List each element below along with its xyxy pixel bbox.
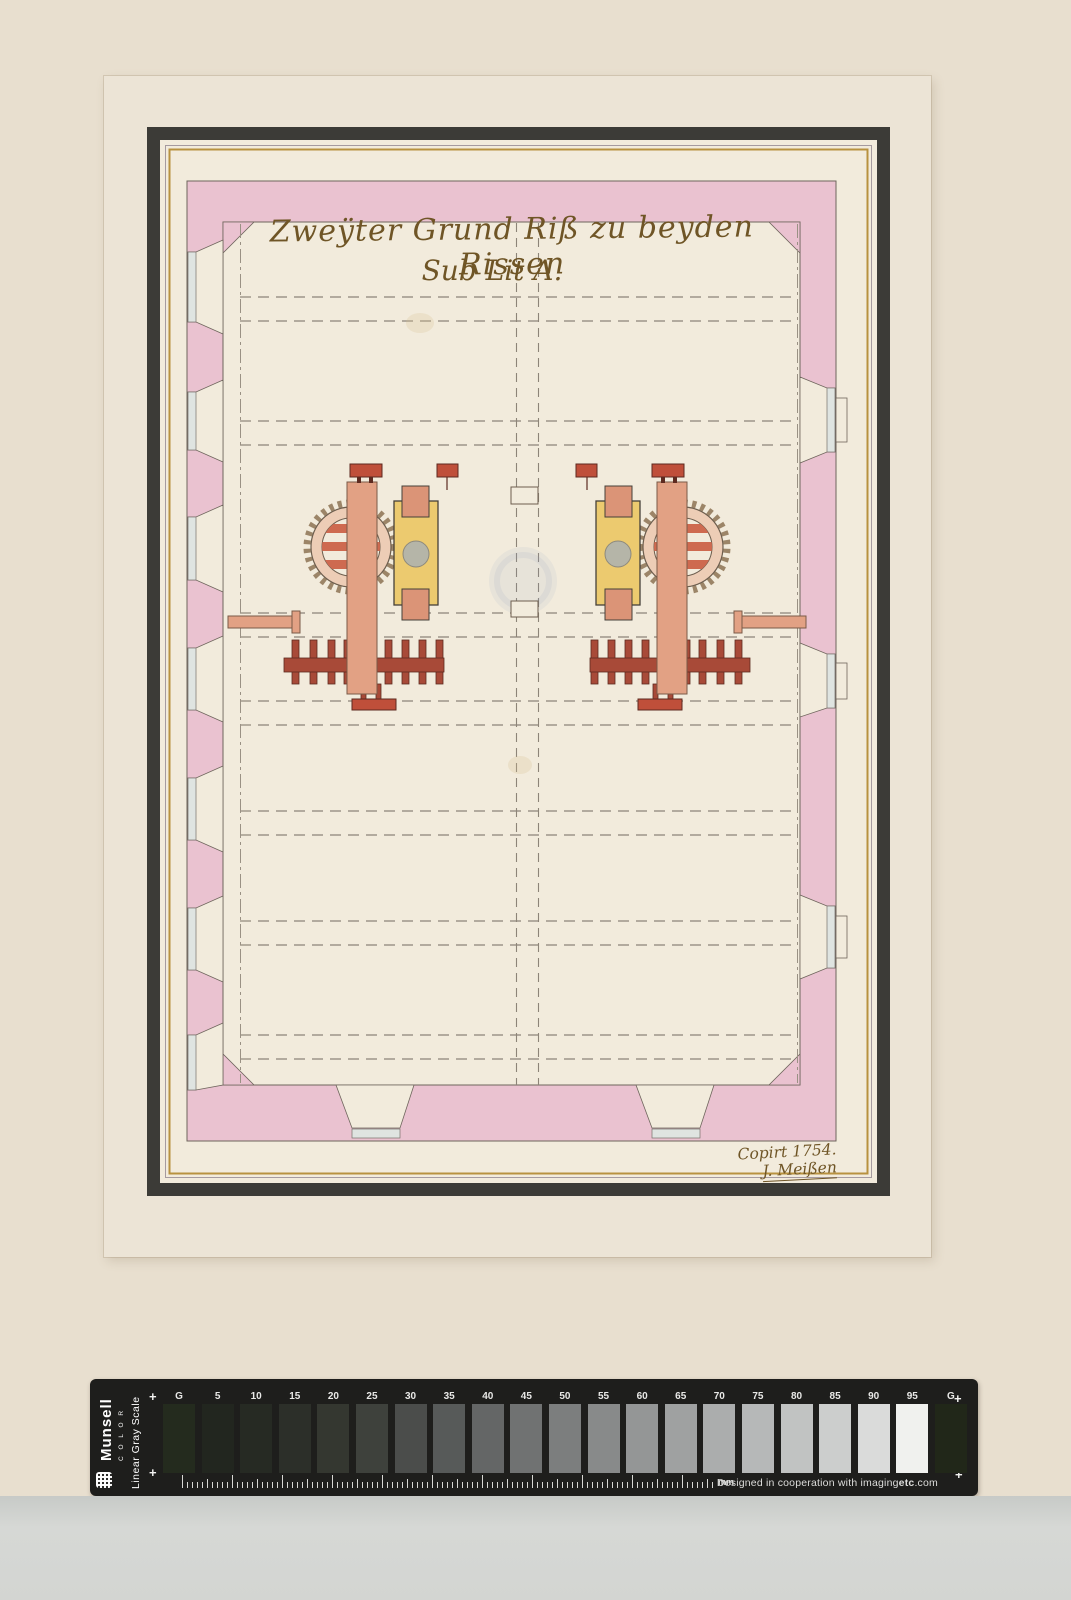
ruler-tick xyxy=(447,1482,448,1488)
ruler-tick xyxy=(632,1475,633,1488)
ruler-tick xyxy=(432,1475,433,1488)
ruler-tick xyxy=(277,1482,278,1488)
gray-patch-G: G xyxy=(935,1391,967,1473)
gray-patch-label: 30 xyxy=(405,1391,416,1404)
ruler-tick xyxy=(402,1482,403,1488)
ruler-tick xyxy=(392,1482,393,1488)
gray-patch-swatch xyxy=(626,1404,658,1473)
ruler-tick xyxy=(182,1475,183,1488)
gray-patch-label: 35 xyxy=(444,1391,455,1404)
ruler-tick xyxy=(647,1482,648,1488)
gray-patch-label: 20 xyxy=(328,1391,339,1404)
ruler-tick xyxy=(352,1482,353,1488)
gray-patch-75: 75 xyxy=(742,1391,774,1473)
ruler-tick xyxy=(227,1482,228,1488)
gray-patch-label: 50 xyxy=(559,1391,570,1404)
ruler-tick xyxy=(237,1482,238,1488)
ruler-tick xyxy=(322,1482,323,1488)
ruler-tick xyxy=(377,1482,378,1488)
gray-patch-swatch xyxy=(163,1404,195,1473)
gray-patch-label: 15 xyxy=(289,1391,300,1404)
ruler-tick xyxy=(242,1482,243,1488)
gray-patch-label: 10 xyxy=(251,1391,262,1404)
gray-patch-label: G xyxy=(175,1391,183,1404)
ruler-tick xyxy=(662,1482,663,1488)
ruler-tick xyxy=(472,1482,473,1488)
ruler-tick xyxy=(572,1482,573,1488)
ruler-tick xyxy=(542,1482,543,1488)
gray-patch-swatch xyxy=(896,1404,928,1473)
ruler-tick xyxy=(442,1482,443,1488)
ruler-tick xyxy=(212,1482,213,1488)
gray-patch-50: 50 xyxy=(549,1391,581,1473)
registration-plus-bl: + xyxy=(149,1465,157,1480)
center-post-socket-upper xyxy=(511,487,538,504)
ruler-tick xyxy=(287,1482,288,1488)
ruler-tick xyxy=(677,1482,678,1488)
ruler-tick xyxy=(327,1482,328,1488)
ruler-tick xyxy=(582,1475,583,1488)
ruler-tick xyxy=(422,1482,423,1488)
ruler-tick xyxy=(417,1482,418,1488)
ruler-tick xyxy=(532,1475,533,1488)
gray-patch-label: 80 xyxy=(791,1391,802,1404)
ruler-tick xyxy=(232,1475,233,1488)
ruler-tick xyxy=(617,1482,618,1488)
gray-patch-swatch xyxy=(742,1404,774,1473)
ruler-tick xyxy=(367,1482,368,1488)
ruler-tick xyxy=(217,1482,218,1488)
signature-name: J. Meißen xyxy=(762,1158,837,1182)
ruler-tick xyxy=(502,1482,503,1488)
gray-patch-swatch xyxy=(665,1404,697,1473)
gray-patch-row: G5101520253035404550556065707580859095G xyxy=(163,1391,967,1473)
ruler-tick xyxy=(307,1479,308,1488)
ruler-tick xyxy=(477,1482,478,1488)
gray-patch-65: 65 xyxy=(665,1391,697,1473)
munsell-brand-sub: C O L O R xyxy=(118,1385,125,1461)
ruler-tick xyxy=(427,1482,428,1488)
gray-patch-swatch xyxy=(549,1404,581,1473)
ruler-tick xyxy=(197,1482,198,1488)
drawing-title-line2: Sub Lit A. xyxy=(312,254,672,287)
ruler-tick xyxy=(437,1482,438,1488)
gray-patch-label: 90 xyxy=(868,1391,879,1404)
gray-patch-label: G xyxy=(947,1391,955,1404)
scale-name-label: Linear Gray Scale xyxy=(130,1385,142,1489)
ruler-tick xyxy=(397,1482,398,1488)
ruler-tick xyxy=(512,1482,513,1488)
ruler-tick xyxy=(202,1482,203,1488)
gray-patch-label: 75 xyxy=(752,1391,763,1404)
ruler-tick xyxy=(707,1479,708,1488)
ruler-tick xyxy=(527,1482,528,1488)
gray-patch-swatch xyxy=(240,1404,272,1473)
scanner-bed-strip xyxy=(0,1496,1071,1600)
gray-patch-20: 20 xyxy=(317,1391,349,1473)
ruler-tick xyxy=(252,1482,253,1488)
ruler-tick xyxy=(507,1479,508,1488)
gray-patch-label: 55 xyxy=(598,1391,609,1404)
ruler-tick xyxy=(562,1482,563,1488)
ruler-tick xyxy=(357,1479,358,1488)
ruler-tick xyxy=(332,1475,333,1488)
ruler-tick xyxy=(302,1482,303,1488)
gray-patch-label: 45 xyxy=(521,1391,532,1404)
ruler-tick xyxy=(667,1482,668,1488)
registration-plus-tl: + xyxy=(149,1389,157,1404)
ruler-tick xyxy=(382,1475,383,1488)
ruler-tick xyxy=(492,1482,493,1488)
gray-patch-70: 70 xyxy=(703,1391,735,1473)
credit-line: Designed in cooperation with imagingetc.… xyxy=(717,1477,938,1489)
gray-patch-swatch xyxy=(472,1404,504,1473)
ruler-tick xyxy=(517,1482,518,1488)
gray-patch-35: 35 xyxy=(433,1391,465,1473)
gray-patch-label: 85 xyxy=(830,1391,841,1404)
ruler-tick xyxy=(457,1479,458,1488)
ruler-tick xyxy=(627,1482,628,1488)
gray-patch-label: 5 xyxy=(215,1391,221,1404)
gray-patch-10: 10 xyxy=(240,1391,272,1473)
ruler-tick xyxy=(187,1482,188,1488)
ruler-tick xyxy=(672,1482,673,1488)
archival-scan: Zweÿter Grund Riß zu beyden Rissen Sub L… xyxy=(0,0,1071,1600)
ruler-tick xyxy=(577,1482,578,1488)
ruler-tick xyxy=(547,1482,548,1488)
gray-patch-label: 40 xyxy=(482,1391,493,1404)
gray-patch-15: 15 xyxy=(279,1391,311,1473)
ruler-tick xyxy=(482,1475,483,1488)
gray-patch-swatch xyxy=(588,1404,620,1473)
ruler-tick xyxy=(622,1482,623,1488)
ruler-tick xyxy=(267,1482,268,1488)
ruler-tick xyxy=(637,1482,638,1488)
ruler-tick xyxy=(387,1482,388,1488)
gray-patch-45: 45 xyxy=(510,1391,542,1473)
gray-patch-swatch xyxy=(317,1404,349,1473)
ruler-tick xyxy=(487,1482,488,1488)
gray-patch-label: 70 xyxy=(714,1391,725,1404)
gray-patch-85: 85 xyxy=(819,1391,851,1473)
ruler-tick xyxy=(317,1482,318,1488)
ruler-tick xyxy=(292,1482,293,1488)
gray-patch-60: 60 xyxy=(626,1391,658,1473)
ruler-tick xyxy=(612,1482,613,1488)
gray-patch-swatch xyxy=(858,1404,890,1473)
ruler-tick xyxy=(452,1482,453,1488)
mm-ruler xyxy=(182,1474,713,1488)
gray-patch-label: 65 xyxy=(675,1391,686,1404)
munsell-logo-icon xyxy=(96,1472,112,1488)
gray-patch-swatch xyxy=(202,1404,234,1473)
ruler-tick xyxy=(692,1482,693,1488)
ruler-tick xyxy=(192,1482,193,1488)
ruler-tick xyxy=(297,1482,298,1488)
gray-patch-swatch xyxy=(279,1404,311,1473)
ruler-tick xyxy=(257,1479,258,1488)
gray-patch-swatch xyxy=(395,1404,427,1473)
gray-patch-90: 90 xyxy=(858,1391,890,1473)
ruler-tick xyxy=(282,1475,283,1488)
ruler-tick xyxy=(712,1482,713,1488)
ruler-tick xyxy=(607,1479,608,1488)
ruler-tick xyxy=(347,1482,348,1488)
ruler-tick xyxy=(407,1479,408,1488)
gray-patch-swatch xyxy=(510,1404,542,1473)
gray-patch-swatch xyxy=(356,1404,388,1473)
ruler-tick xyxy=(467,1482,468,1488)
ruler-tick xyxy=(652,1482,653,1488)
gray-patch-swatch xyxy=(819,1404,851,1473)
gray-patch-30: 30 xyxy=(395,1391,427,1473)
ruler-tick xyxy=(247,1482,248,1488)
ruler-tick xyxy=(592,1482,593,1488)
munsell-brand-name: Munsell xyxy=(98,1385,115,1461)
gray-patch-label: 60 xyxy=(637,1391,648,1404)
ruler-tick xyxy=(342,1482,343,1488)
munsell-gray-scale-bar: Munsell C O L O R Linear Gray Scale + + … xyxy=(90,1379,978,1496)
ruler-tick xyxy=(412,1482,413,1488)
ruler-tick xyxy=(697,1482,698,1488)
ruler-tick xyxy=(657,1479,658,1488)
gray-patch-label: 95 xyxy=(907,1391,918,1404)
ruler-tick xyxy=(552,1482,553,1488)
gray-patch-swatch xyxy=(433,1404,465,1473)
ruler-tick xyxy=(312,1482,313,1488)
ruler-tick xyxy=(687,1482,688,1488)
ruler-tick xyxy=(262,1482,263,1488)
ruler-tick xyxy=(362,1482,363,1488)
ruler-tick xyxy=(272,1482,273,1488)
ruler-tick xyxy=(497,1482,498,1488)
gray-patch-5: 5 xyxy=(202,1391,234,1473)
ruler-tick xyxy=(642,1482,643,1488)
ruler-tick xyxy=(462,1482,463,1488)
gray-patch-label: 25 xyxy=(366,1391,377,1404)
ruler-tick xyxy=(207,1479,208,1488)
gray-patch-G: G xyxy=(163,1391,195,1473)
gray-patch-55: 55 xyxy=(588,1391,620,1473)
ruler-tick xyxy=(537,1482,538,1488)
ruler-tick xyxy=(602,1482,603,1488)
gray-patch-swatch xyxy=(703,1404,735,1473)
ruler-tick xyxy=(702,1482,703,1488)
ruler-tick xyxy=(557,1479,558,1488)
gray-patch-swatch xyxy=(781,1404,813,1473)
ruler-tick xyxy=(222,1482,223,1488)
ruler-tick xyxy=(567,1482,568,1488)
gray-patch-swatch xyxy=(935,1404,967,1473)
ruler-tick xyxy=(522,1482,523,1488)
ruler-tick xyxy=(597,1482,598,1488)
gray-patch-80: 80 xyxy=(781,1391,813,1473)
center-post-socket-lower xyxy=(511,601,538,617)
gray-patch-25: 25 xyxy=(356,1391,388,1473)
ruler-tick xyxy=(372,1482,373,1488)
ruler-tick xyxy=(587,1482,588,1488)
gray-patch-95: 95 xyxy=(896,1391,928,1473)
ruler-tick xyxy=(337,1482,338,1488)
ruler-tick xyxy=(682,1475,683,1488)
gray-patch-40: 40 xyxy=(472,1391,504,1473)
